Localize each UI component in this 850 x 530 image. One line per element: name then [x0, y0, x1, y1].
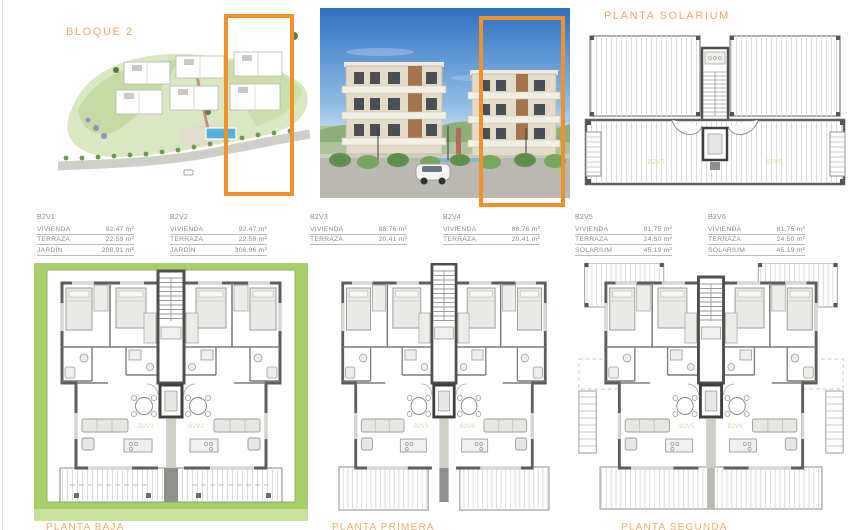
plan-unit-label-right: B2V4: [460, 423, 475, 430]
row-value: 45.19 m²: [777, 247, 805, 254]
row-value: 81.75 m²: [644, 226, 672, 233]
row-label: VIVIENDA: [708, 226, 741, 233]
unit-table-b2v6: B2V6 VIVIENDA81.75 m² TERRAZA24.50 m² SO…: [708, 214, 805, 256]
row-value: 24.50 m²: [777, 236, 805, 243]
table-row: TERRAZA20.41 m²: [310, 235, 407, 246]
table-row: SOLARIUM45.19 m²: [575, 245, 672, 256]
row-value: 22.59 m²: [239, 236, 267, 243]
unit-table-b2v3: B2V3 VIVIENDA88.76 m² TERRAZA20.41 m²: [310, 214, 407, 245]
row-value: 20.41 m²: [512, 236, 540, 243]
row-value: 81.75 m²: [777, 226, 805, 233]
unit-table-b2v1: B2V1 VIVIENDA92.47 m² TERRAZA22.59 m² JA…: [37, 214, 134, 256]
caption-planta-baja: PLANTA BAJA: [46, 522, 125, 530]
row-label: VIVIENDA: [443, 226, 476, 233]
row-value: 24.50 m²: [644, 236, 672, 243]
solarium-plan-svg: B2V5B2V6: [584, 24, 847, 196]
row-value: 88.76 m²: [512, 226, 540, 233]
table-row: TERRAZA20.41 m²: [443, 235, 540, 246]
table-row: VIVIENDA88.76 m²: [443, 224, 540, 235]
row-label: VIVIENDA: [310, 226, 343, 233]
solarium-label: PLANTA SOLARIUM: [604, 10, 730, 22]
row-label: SOLARIUM: [708, 247, 745, 254]
plan-unit-label-left: B2V5: [679, 423, 695, 430]
unit-id: B2V2: [170, 214, 267, 221]
plan-unit-label-right: B2V2: [188, 423, 204, 430]
row-value: 208.91 m²: [102, 247, 134, 254]
floor-plan-planta-primera: B2V3B2V4: [313, 263, 575, 521]
table-row: TERRAZA22.59 m²: [37, 235, 134, 246]
row-value: 92.47 m²: [106, 226, 134, 233]
row-label: TERRAZA: [37, 236, 70, 243]
unit-table-b2v2: B2V2 VIVIENDA92.47 m² TERRAZA22.59 m² JA…: [170, 214, 267, 256]
table-row: TERRAZA22.59 m²: [170, 235, 267, 246]
solarium-plan: B2V5B2V6: [584, 24, 847, 196]
row-label: TERRAZA: [310, 236, 343, 243]
floor-plan-planta-segunda: B2V5B2V6: [575, 263, 847, 521]
table-row: VIVIENDA88.76 m²: [310, 224, 407, 235]
bloque-label: BLOQUE 2: [66, 26, 134, 38]
row-label: TERRAZA: [170, 236, 203, 243]
unit-id: B2V6: [708, 214, 805, 221]
row-label: TERRAZA: [443, 236, 476, 243]
table-row: VIVIENDA92.47 m²: [37, 224, 134, 235]
floor-plan-svg: B2V1B2V2: [30, 263, 312, 521]
row-label: TERRAZA: [708, 236, 741, 243]
table-row: JARDÍN306.96 m²: [170, 245, 267, 256]
page-left-border: [2, 0, 3, 530]
street-highlight-rect: [479, 16, 565, 207]
table-row: VIVIENDA92.47 m²: [170, 224, 267, 235]
row-label: JARDÍN: [37, 247, 63, 254]
plan-unit-label-left: B2V1: [138, 423, 154, 430]
row-value: 45.19 m²: [644, 247, 672, 254]
row-label: VIVIENDA: [575, 226, 608, 233]
floor-plan-svg: B2V3B2V4: [313, 263, 575, 521]
table-row: SOLARIUM45.19 m²: [708, 245, 805, 256]
aerial-highlight-rect: [224, 14, 294, 196]
unit-id: B2V5: [575, 214, 672, 221]
solarium-unit-label-right: B2V6: [765, 159, 782, 166]
solarium-unit-label-left: B2V5: [647, 159, 664, 166]
brochure-page: BLOQUE 2: [0, 0, 850, 530]
plan-unit-label-right: B2V6: [727, 423, 743, 430]
row-label: TERRAZA: [575, 236, 608, 243]
table-row: JARDÍN208.91 m²: [37, 245, 134, 256]
row-value: 20.41 m²: [379, 236, 407, 243]
unit-id: B2V1: [37, 214, 134, 221]
table-row: TERRAZA24.50 m²: [708, 235, 805, 246]
table-row: VIVIENDA81.75 m²: [575, 224, 672, 235]
unit-table-b2v4: B2V4 VIVIENDA88.76 m² TERRAZA20.41 m²: [443, 214, 540, 245]
table-row: VIVIENDA81.75 m²: [708, 224, 805, 235]
row-value: 92.47 m²: [239, 226, 267, 233]
unit-id: B2V4: [443, 214, 540, 221]
row-label: VIVIENDA: [170, 226, 203, 233]
row-value: 88.76 m²: [379, 226, 407, 233]
row-label: VIVIENDA: [37, 226, 70, 233]
row-label: JARDÍN: [170, 247, 196, 254]
unit-id: B2V3: [310, 214, 407, 221]
floor-plan-planta-baja: B2V1B2V2: [30, 263, 312, 521]
table-row: TERRAZA24.50 m²: [575, 235, 672, 246]
unit-table-b2v5: B2V5 VIVIENDA81.75 m² TERRAZA24.50 m² SO…: [575, 214, 672, 256]
floor-plan-svg: B2V5B2V6: [575, 263, 847, 521]
row-value: 306.96 m²: [235, 247, 267, 254]
caption-planta-segunda: PLANTA SEGUNDA: [621, 522, 728, 530]
plan-unit-label-left: B2V3: [413, 423, 428, 430]
row-value: 22.59 m²: [106, 236, 134, 243]
row-label: SOLARIUM: [575, 247, 612, 254]
caption-planta-primera: PLANTA PRIMERA: [332, 522, 435, 530]
